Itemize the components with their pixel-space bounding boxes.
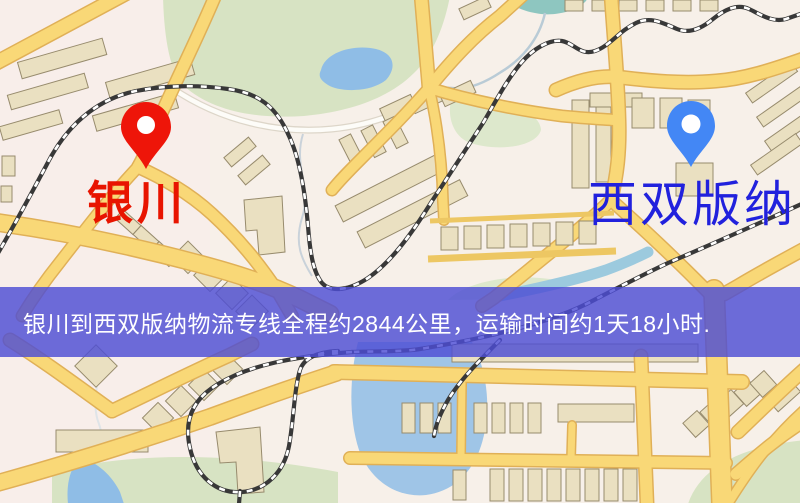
map-canvas[interactable]: 银川 西双版纳 — [0, 0, 800, 503]
destination-city-label: 西双版纳 — [588, 178, 796, 232]
origin-city-label: 银川 — [87, 177, 187, 229]
route-info-banner: 银川到西双版纳物流专线全程约2844公里，运输时间约1天18小时. — [0, 287, 800, 357]
route-info-text: 银川到西双版纳物流专线全程约2844公里，运输时间约1天18小时. — [23, 305, 710, 339]
map-screenshot: 银川 西双版纳 银川到西双版纳物流专线全程约2844公里，运输时间约1天18小时… — [0, 0, 800, 503]
